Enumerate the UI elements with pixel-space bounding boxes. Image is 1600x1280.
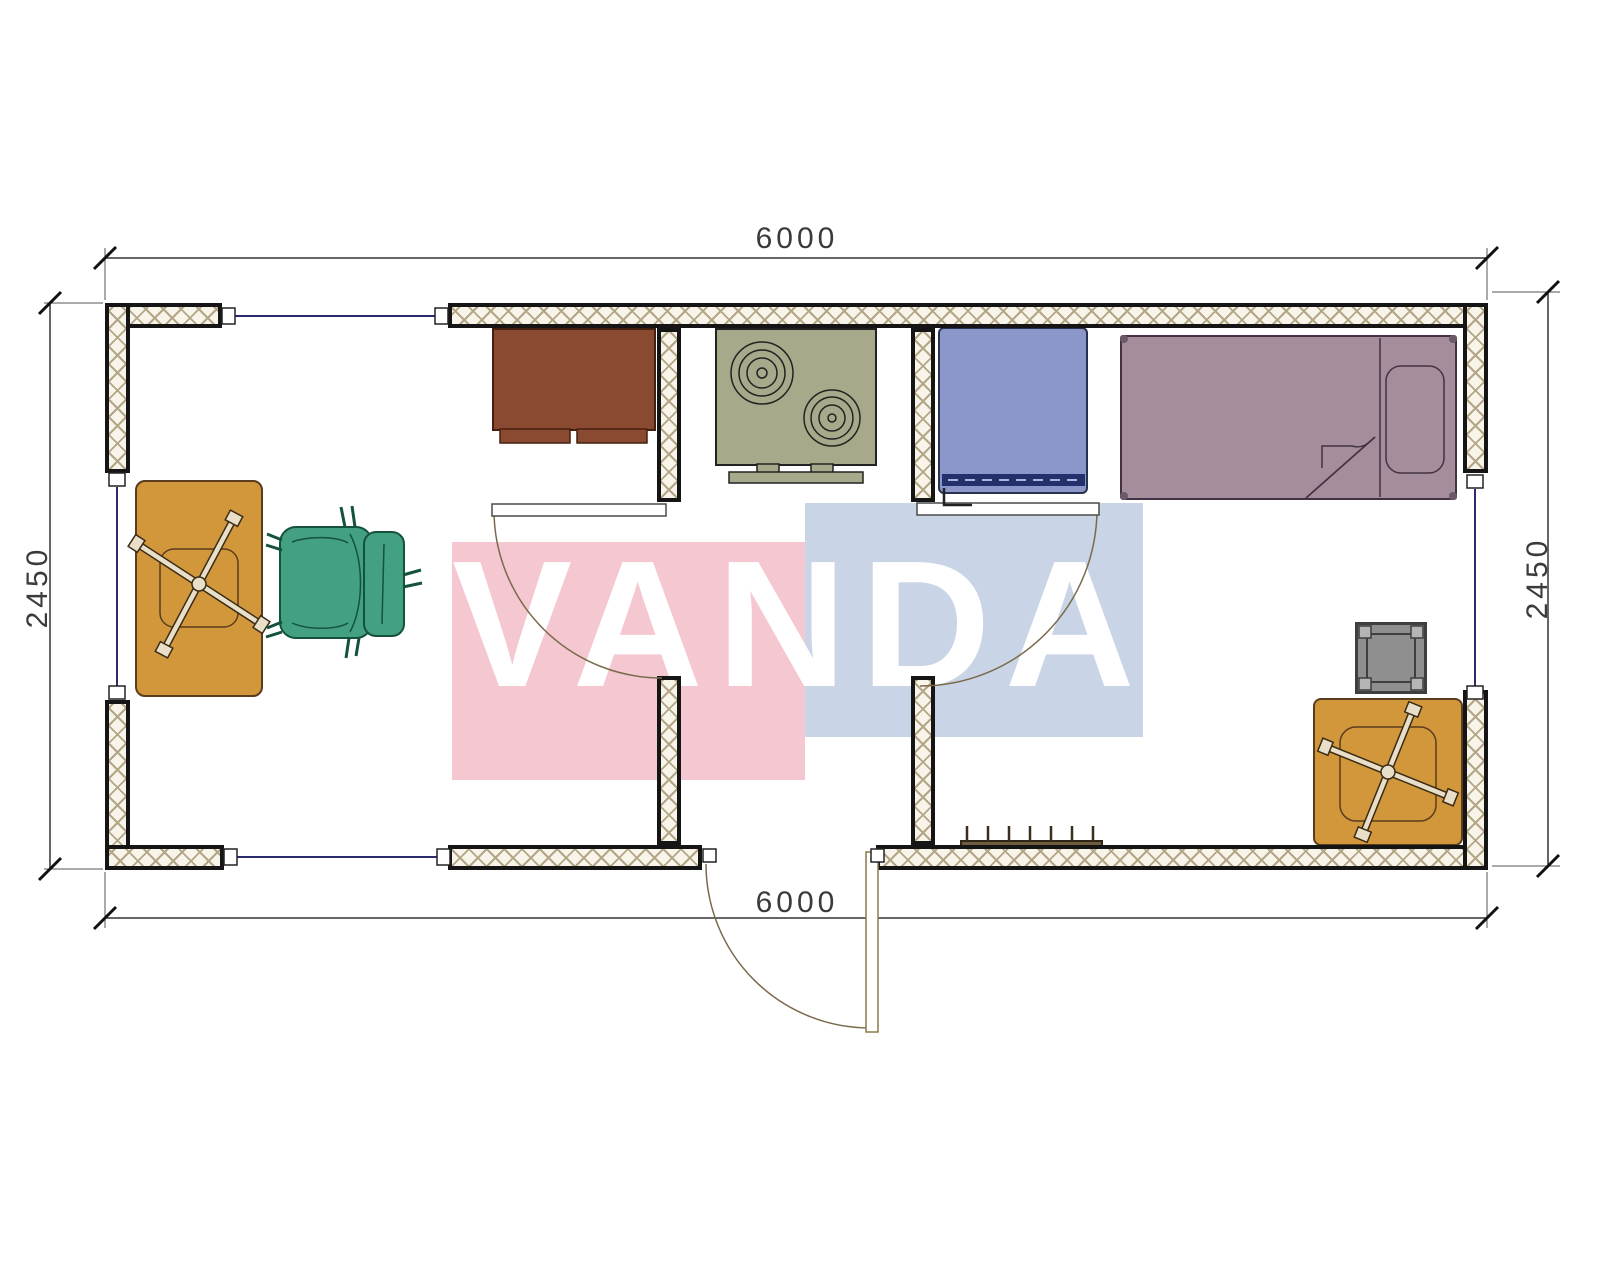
office-chair	[266, 506, 422, 658]
pedestal-cross-left	[128, 510, 270, 658]
dimension-right: 2450	[1521, 508, 1555, 648]
dimension-ticks	[39, 247, 1559, 929]
stove-burners	[731, 342, 860, 446]
plan-linework	[0, 0, 1600, 1280]
dimension-top: 6000	[697, 222, 897, 256]
bed-details	[1120, 335, 1457, 500]
floor-plan-drawing: VANDA	[0, 0, 1600, 1280]
washer-door-band	[942, 474, 1085, 505]
stool-details	[1359, 626, 1423, 690]
interior-door-left	[492, 504, 666, 678]
dimension-lines	[50, 258, 1548, 918]
pedestal-cross-right	[1318, 702, 1459, 843]
entrance-door	[703, 849, 884, 1032]
extension-lines	[44, 248, 1560, 928]
dimension-bottom: 6000	[697, 886, 897, 920]
interior-door-right	[917, 503, 1099, 686]
radiator-fins	[967, 826, 1093, 841]
cabinet-feet	[500, 429, 647, 443]
dimension-left: 2450	[21, 517, 55, 657]
stove-base	[729, 464, 863, 483]
